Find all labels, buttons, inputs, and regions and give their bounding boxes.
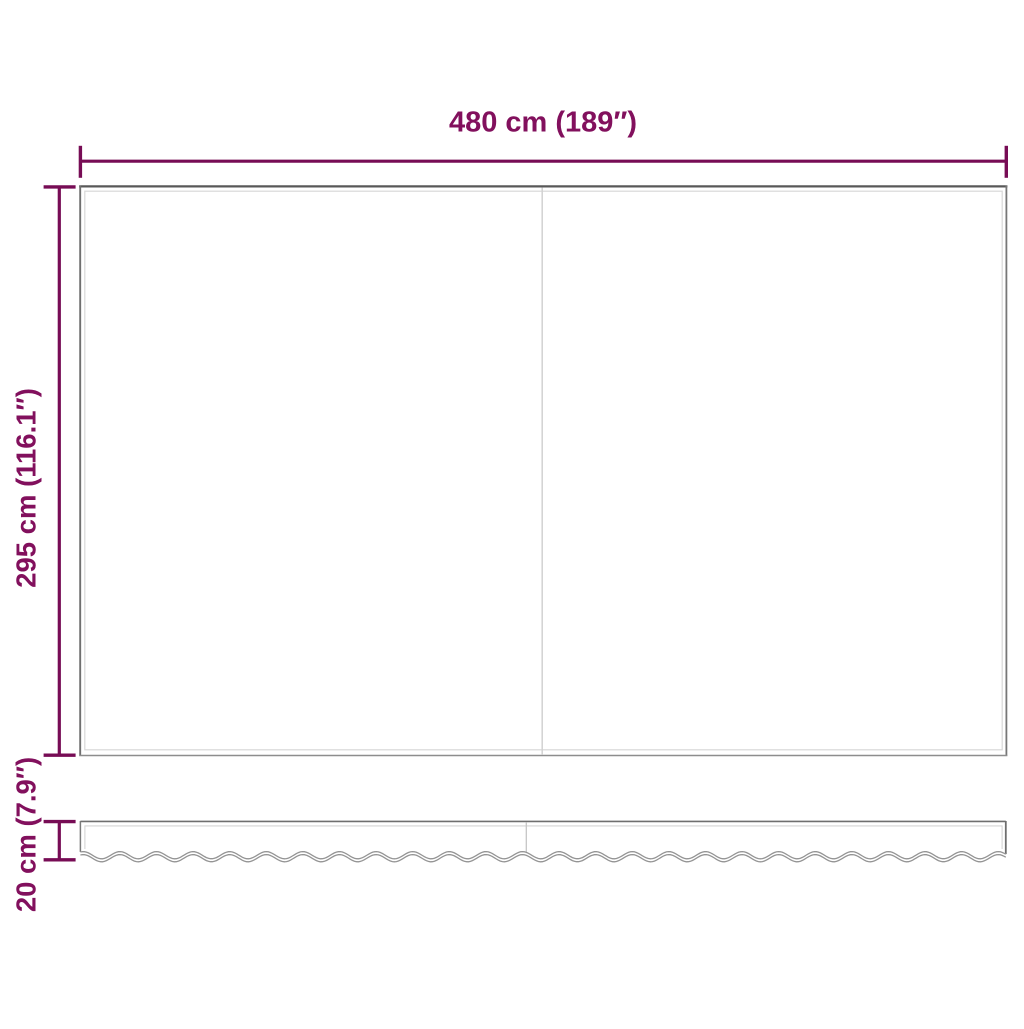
svg-text:295 cm (116.1″): 295 cm (116.1″) [11,388,42,588]
svg-text:480 cm (189″): 480 cm (189″) [449,106,637,138]
svg-text:20 cm (7.9″): 20 cm (7.9″) [11,757,42,912]
